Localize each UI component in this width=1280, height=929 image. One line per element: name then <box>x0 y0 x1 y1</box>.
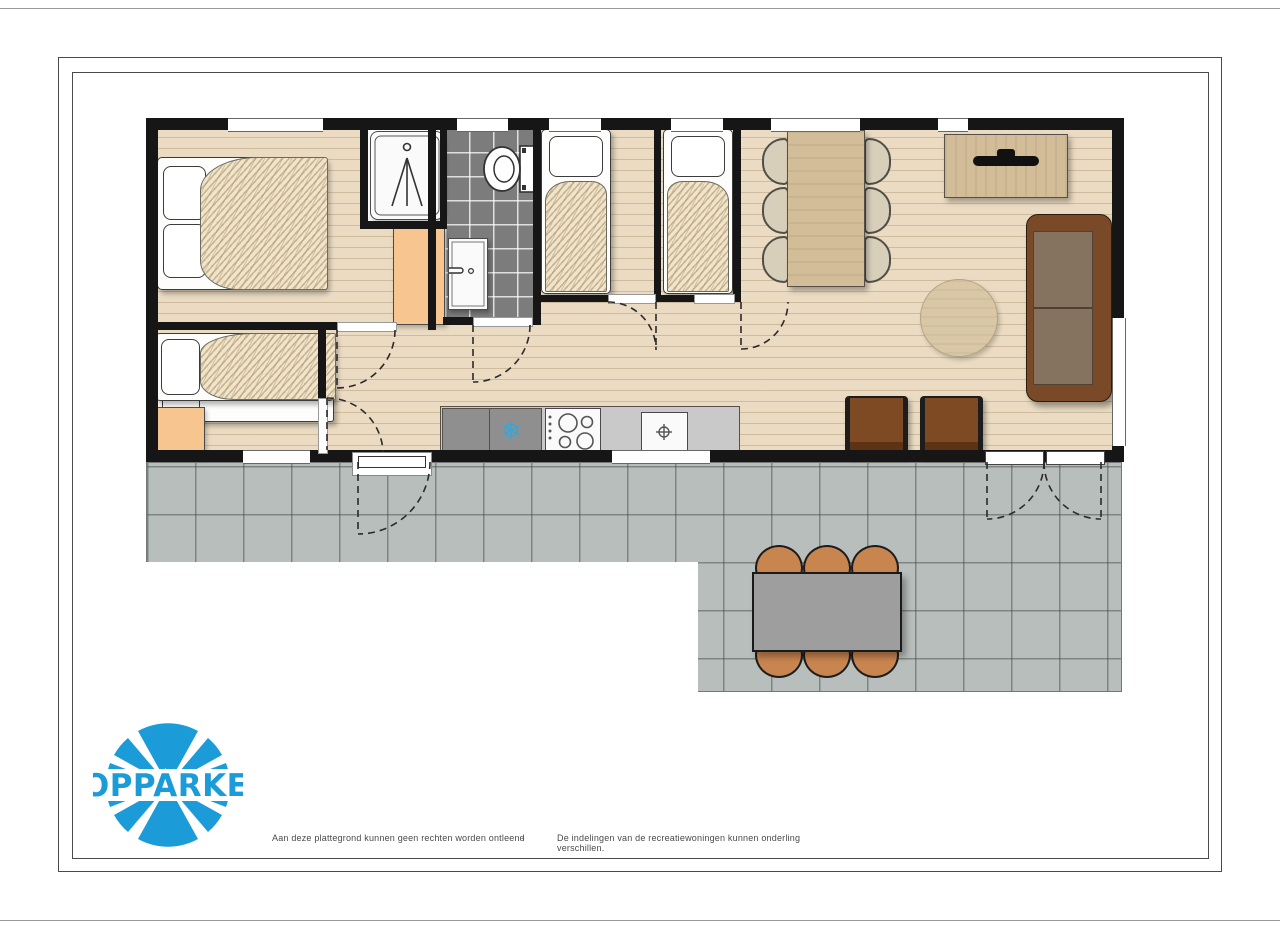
topparken-logo: TOPPARKEN <box>93 715 243 855</box>
logo-wordmark: TOPPARKEN <box>93 768 243 804</box>
disclaimer-left: Aan deze plattegrond kunnen geen rechten… <box>272 833 532 843</box>
disclaimer-separator: - <box>521 833 524 843</box>
floorplan-page: ❄ <box>0 0 1280 929</box>
disclaimer-right: De indelingen van de recreatiewoningen k… <box>557 833 837 853</box>
topparken-logo-mark: TOPPARKEN <box>93 715 243 855</box>
